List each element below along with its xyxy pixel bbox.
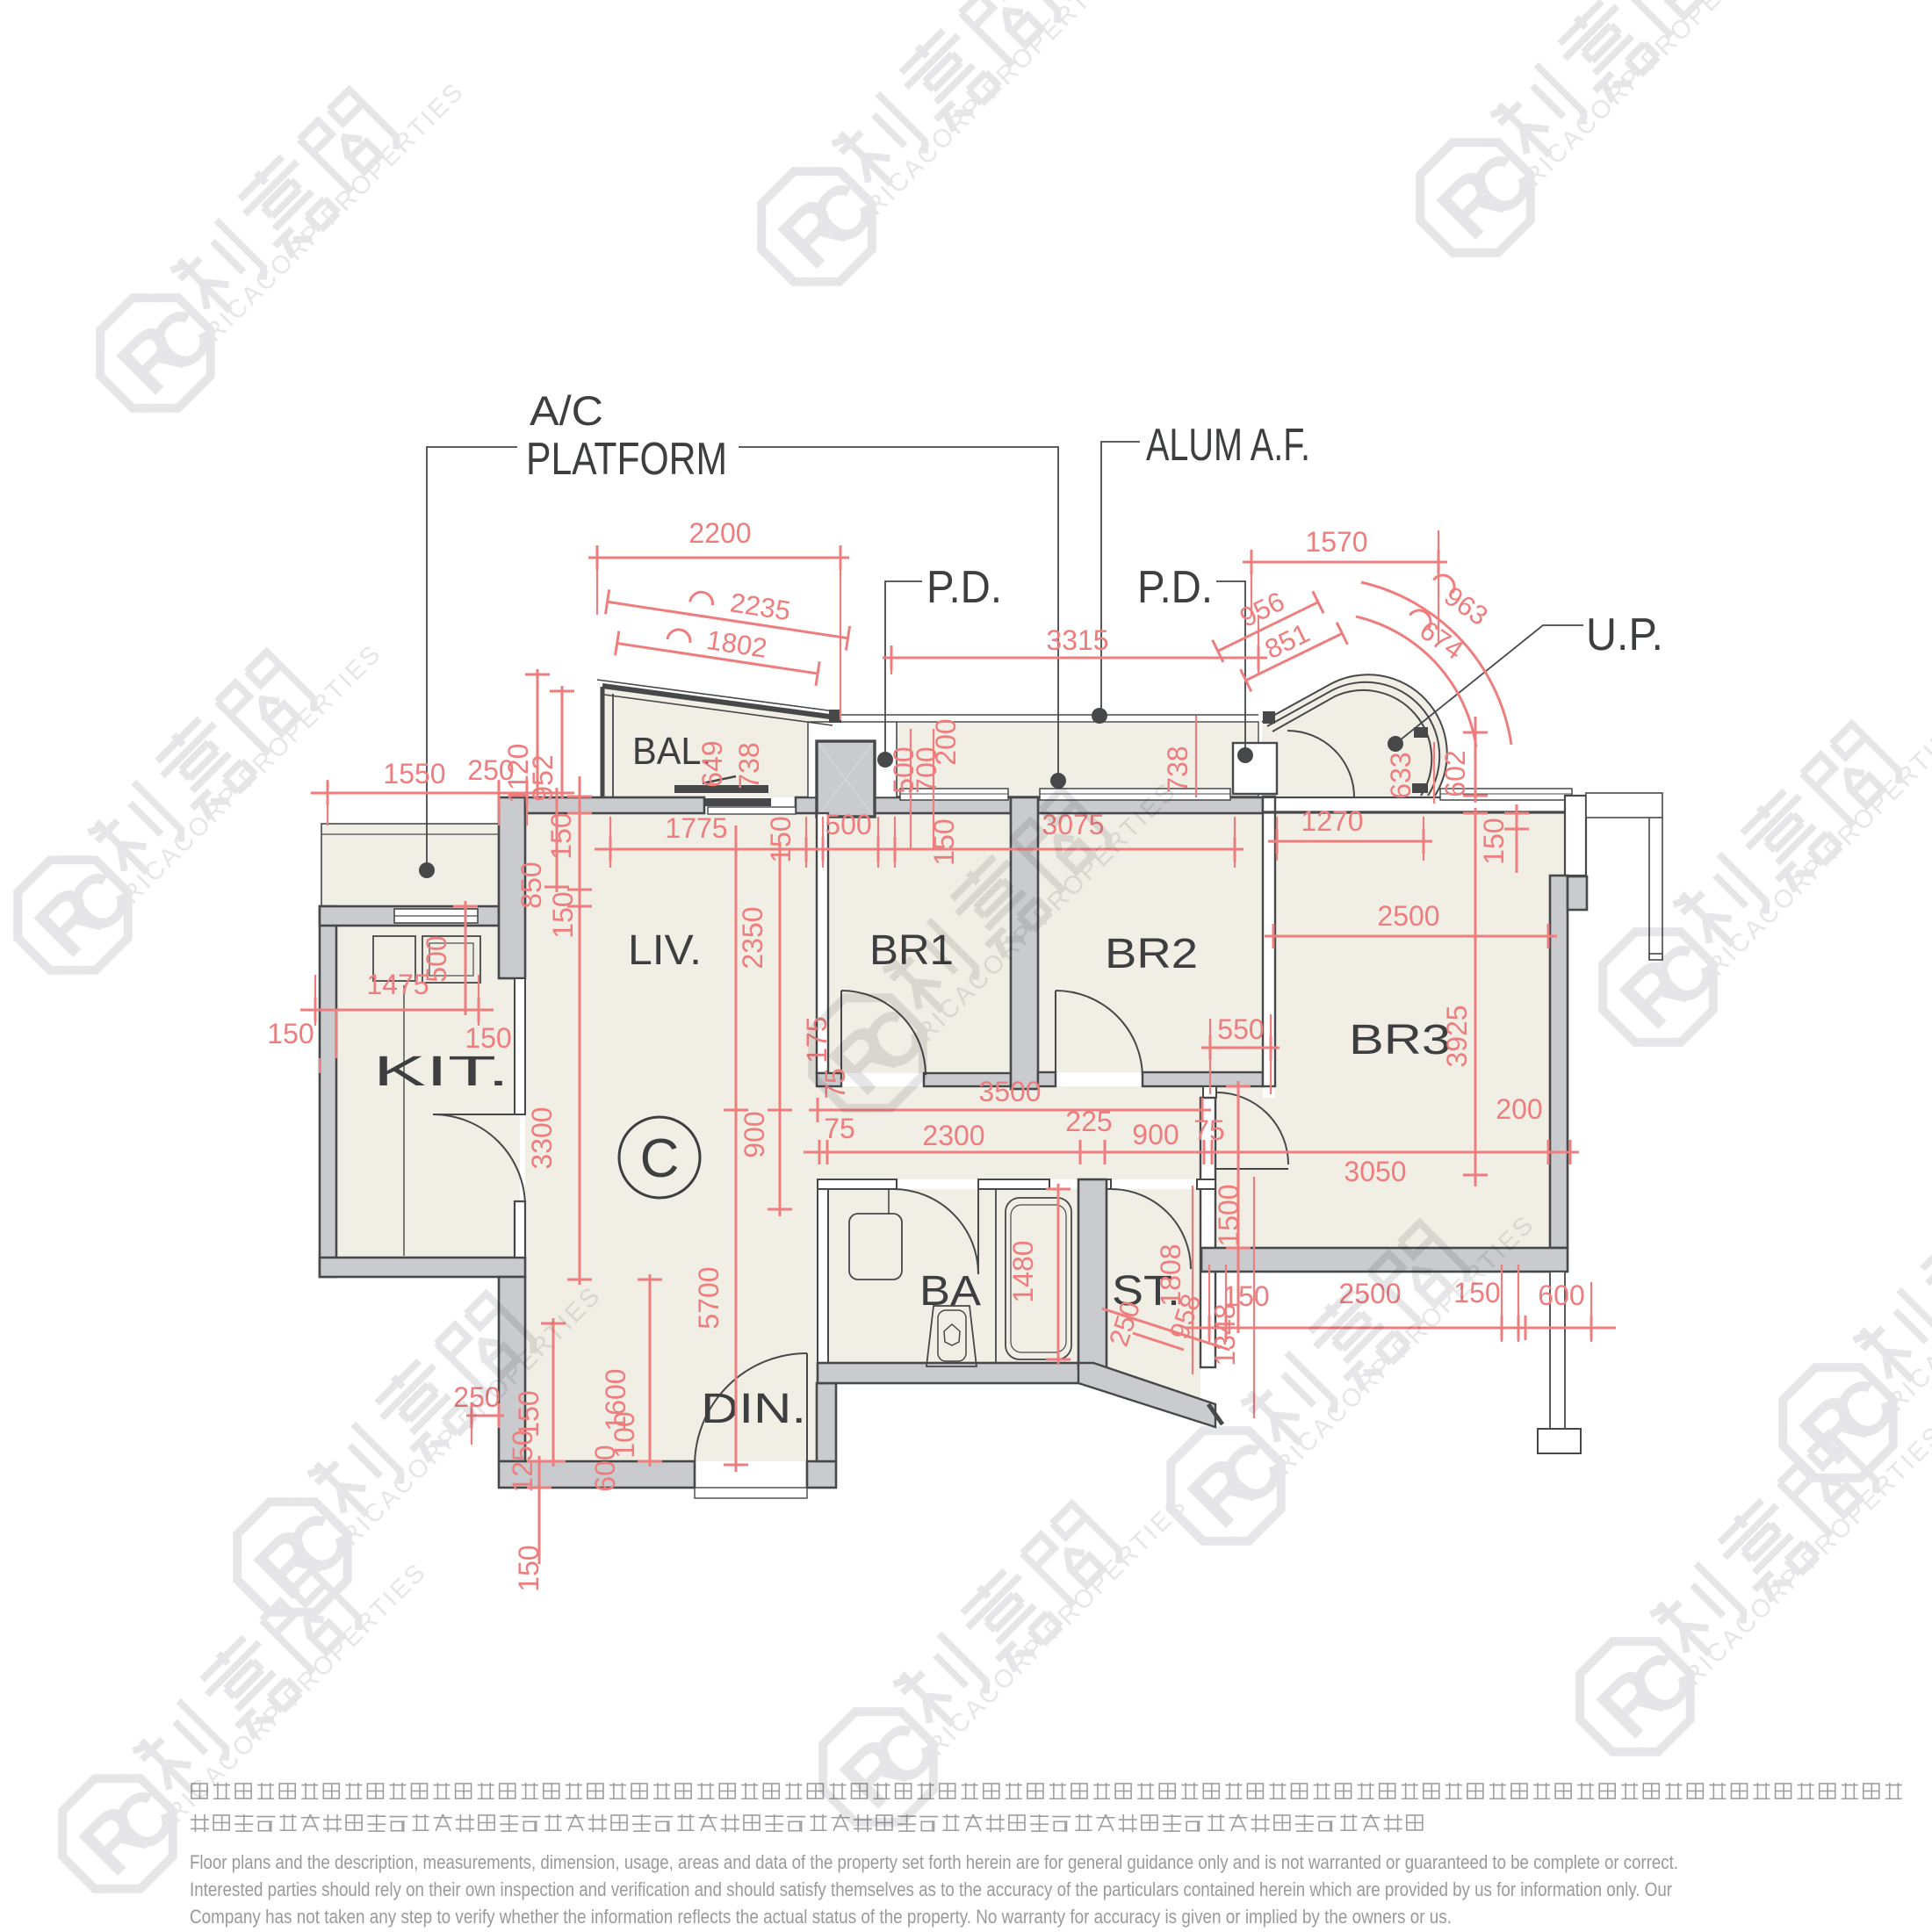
svg-text:2300: 2300 — [922, 1120, 984, 1151]
svg-text:C: C — [640, 1128, 680, 1189]
svg-text:1475: 1475 — [366, 969, 429, 1000]
svg-text:ALUM A.F.: ALUM A.F. — [1146, 420, 1310, 471]
svg-text:602: 602 — [1439, 750, 1471, 797]
svg-text:Company has not taken any step: Company has not taken any step to verify… — [190, 1906, 1452, 1928]
svg-text:150: 150 — [513, 1545, 544, 1591]
svg-text:1550: 1550 — [383, 758, 445, 789]
svg-text:850: 850 — [515, 861, 547, 908]
svg-text:U.P.: U.P. — [1586, 609, 1663, 660]
svg-text:500: 500 — [421, 935, 452, 982]
svg-text:PLATFORM: PLATFORM — [526, 434, 727, 485]
svg-text:550: 550 — [1217, 1013, 1264, 1045]
svg-text:3300: 3300 — [526, 1107, 558, 1169]
svg-text:LIV.: LIV. — [628, 927, 702, 974]
svg-text:1500: 1500 — [1213, 1184, 1244, 1246]
svg-text:1270: 1270 — [1301, 805, 1363, 837]
svg-text:150: 150 — [1222, 1280, 1269, 1312]
svg-text:DIN.: DIN. — [701, 1386, 806, 1432]
svg-text:150: 150 — [513, 1390, 544, 1437]
svg-text:1775: 1775 — [665, 812, 727, 844]
svg-text:150: 150 — [465, 1022, 511, 1054]
svg-text:738: 738 — [733, 742, 765, 789]
svg-text:2350: 2350 — [737, 906, 768, 969]
svg-text:952: 952 — [527, 754, 559, 801]
svg-text:BA: BA — [919, 1268, 981, 1315]
svg-text:BR3: BR3 — [1349, 1017, 1451, 1063]
svg-text:600: 600 — [1538, 1280, 1584, 1311]
svg-text:P.D.: P.D. — [1137, 562, 1213, 613]
svg-text:2200: 2200 — [688, 517, 751, 549]
svg-text:3315: 3315 — [1046, 624, 1108, 656]
svg-text:P.D.: P.D. — [926, 562, 1002, 613]
svg-text:Interested parties should rely: Interested parties should rely on their … — [190, 1878, 1672, 1900]
svg-text:2500: 2500 — [1377, 900, 1439, 932]
svg-text:600: 600 — [589, 1445, 621, 1491]
svg-text:Floor plans and the descriptio: Floor plans and the description, measure… — [190, 1851, 1678, 1873]
svg-text:KIT.: KIT. — [373, 1049, 509, 1095]
svg-text:3925: 3925 — [1441, 1005, 1473, 1067]
svg-text:150: 150 — [545, 812, 577, 859]
svg-text:75: 75 — [824, 1113, 855, 1144]
svg-text:900: 900 — [1132, 1119, 1179, 1150]
svg-text:200: 200 — [930, 718, 962, 765]
svg-text:75: 75 — [1193, 1114, 1225, 1146]
svg-text:150: 150 — [1478, 818, 1510, 864]
svg-text:225: 225 — [1065, 1106, 1112, 1137]
svg-text:BR2: BR2 — [1105, 931, 1198, 977]
svg-text:900: 900 — [739, 1111, 770, 1157]
svg-text:A/C: A/C — [530, 387, 603, 434]
svg-text:200: 200 — [1496, 1093, 1542, 1125]
svg-text:3050: 3050 — [1344, 1156, 1406, 1187]
svg-text:633: 633 — [1385, 752, 1417, 798]
svg-text:500: 500 — [825, 809, 871, 840]
svg-text:1480: 1480 — [1007, 1240, 1039, 1302]
svg-text:150: 150 — [547, 891, 579, 938]
svg-text:1570: 1570 — [1305, 526, 1367, 558]
svg-text:3500: 3500 — [978, 1076, 1041, 1107]
svg-text:649: 649 — [696, 740, 728, 787]
svg-text:150: 150 — [267, 1018, 314, 1049]
svg-text:5700: 5700 — [693, 1266, 724, 1329]
